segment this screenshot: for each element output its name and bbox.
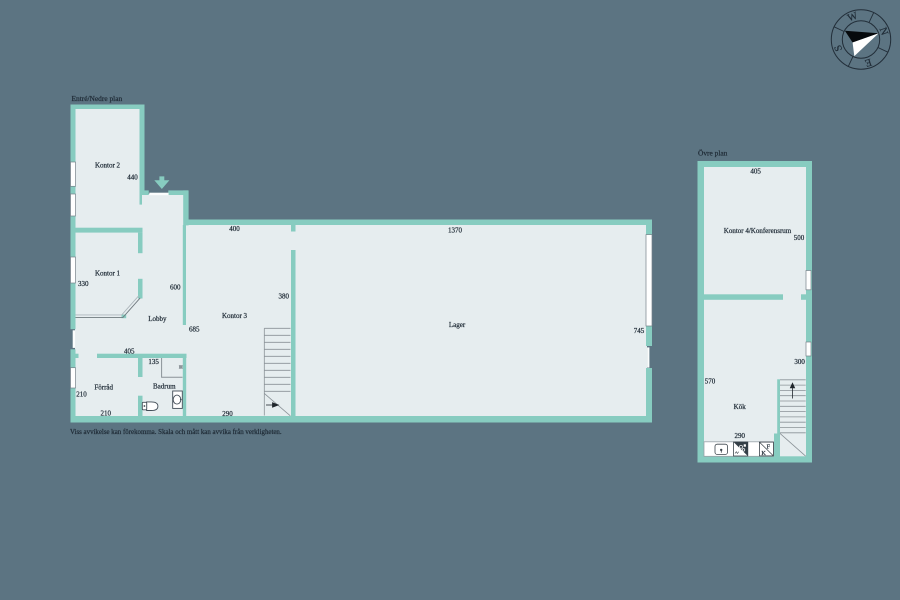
svg-text:135: 135 bbox=[148, 358, 159, 366]
svg-text:400: 400 bbox=[229, 225, 240, 233]
svg-text:1370: 1370 bbox=[448, 227, 463, 235]
svg-text:210: 210 bbox=[101, 410, 112, 418]
svg-text:500: 500 bbox=[794, 234, 805, 242]
svg-text:405: 405 bbox=[750, 167, 761, 175]
svg-text:745: 745 bbox=[634, 327, 645, 335]
svg-text:210: 210 bbox=[76, 390, 87, 398]
svg-text:Kontor 1: Kontor 1 bbox=[95, 270, 121, 278]
svg-text:300: 300 bbox=[794, 358, 805, 366]
svg-text:Kontor 4/Konferensrum: Kontor 4/Konferensrum bbox=[724, 227, 792, 235]
svg-text:K: K bbox=[761, 450, 766, 457]
svg-text:330: 330 bbox=[78, 280, 89, 288]
svg-text:Kontor 2: Kontor 2 bbox=[95, 162, 121, 170]
svg-text:Förråd: Förråd bbox=[94, 383, 113, 391]
svg-text:570: 570 bbox=[705, 377, 716, 385]
svg-text:Kontor 3: Kontor 3 bbox=[222, 312, 248, 320]
svg-text:440: 440 bbox=[127, 173, 138, 181]
svg-text:600: 600 bbox=[170, 284, 181, 292]
svg-text:Badrum: Badrum bbox=[153, 383, 176, 391]
svg-text:Viss avvikelse kan förekomma.: Viss avvikelse kan förekomma. Skala och … bbox=[70, 429, 282, 436]
svg-text:685: 685 bbox=[189, 325, 200, 333]
svg-text:290: 290 bbox=[734, 432, 745, 440]
svg-text:Lobby: Lobby bbox=[148, 315, 167, 323]
svg-text:380: 380 bbox=[278, 293, 289, 301]
svg-text:Övre plan: Övre plan bbox=[698, 149, 728, 158]
svg-text:Entré/Nedre plan: Entré/Nedre plan bbox=[72, 94, 123, 103]
svg-text:F: F bbox=[767, 444, 771, 451]
svg-text:290: 290 bbox=[222, 410, 233, 418]
svg-text:Lager: Lager bbox=[449, 321, 466, 329]
svg-text:405: 405 bbox=[124, 347, 135, 355]
svg-text:Kök: Kök bbox=[734, 403, 747, 411]
